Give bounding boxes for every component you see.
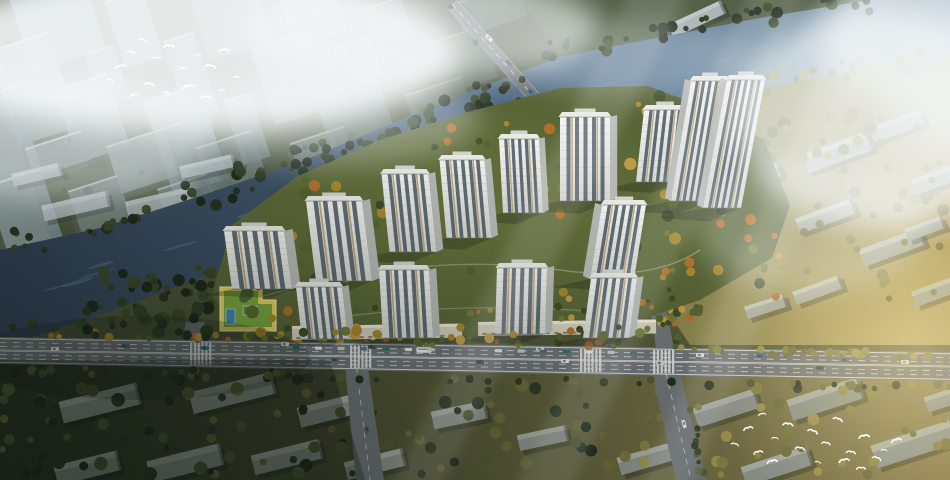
scene-svg bbox=[0, 0, 950, 480]
aerial-residential-render bbox=[0, 0, 950, 480]
atmosphere bbox=[0, 0, 950, 480]
vignette bbox=[0, 0, 950, 480]
